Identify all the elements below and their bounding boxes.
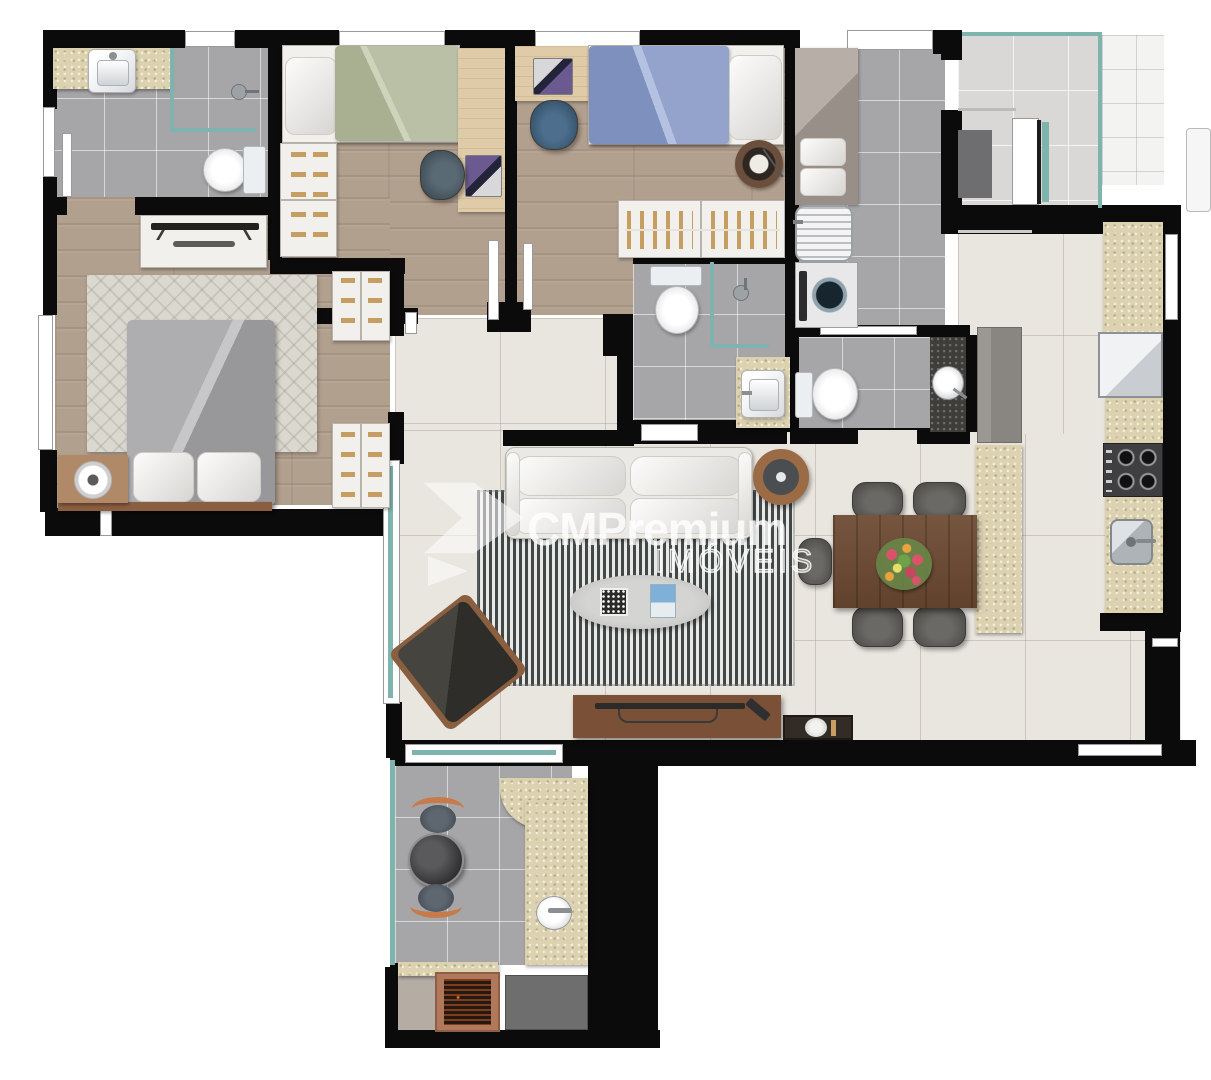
toilet-tank	[243, 146, 266, 194]
sliding-door-glass	[412, 750, 556, 755]
washer-controls	[799, 271, 807, 321]
window	[1165, 234, 1178, 320]
round-rug-floor-lamp	[735, 140, 783, 188]
bistro-chair	[410, 880, 462, 920]
wardrobe-handles	[341, 432, 355, 502]
refrigerator-icon	[1098, 332, 1163, 398]
toilet-bowl	[655, 286, 699, 334]
bistro-table	[408, 833, 464, 887]
square-sink	[741, 370, 785, 418]
wardrobe	[332, 271, 390, 341]
watermark-subtitle: IMÓVEIS	[655, 543, 816, 580]
book-icon	[650, 584, 676, 618]
terrace-service-counter	[505, 975, 588, 1030]
logo-tail	[428, 556, 468, 586]
wall	[603, 314, 633, 356]
barbecue-grill-icon	[435, 972, 500, 1032]
door-swing-line	[958, 230, 1032, 233]
door-opening	[858, 430, 917, 444]
bbq-nook-floor	[398, 975, 438, 1032]
pillow	[285, 57, 337, 135]
plant-pot-icon	[805, 718, 827, 737]
tv-stand	[618, 709, 718, 723]
console-decor	[831, 720, 836, 736]
chair-seat	[420, 805, 456, 833]
terrace-glass-wall	[390, 760, 395, 965]
external-tile-area	[1102, 35, 1164, 185]
sofa-back-cushion	[516, 456, 626, 496]
wall	[45, 508, 390, 536]
shower-glass	[170, 48, 174, 132]
wardrobe-handles	[368, 278, 382, 338]
faucet	[548, 908, 572, 913]
entry-door-edge	[1037, 120, 1041, 204]
tv-leg	[234, 230, 252, 240]
logo-arrow	[424, 478, 524, 558]
dresser-handles	[291, 152, 306, 252]
entry-glass-rail	[1098, 32, 1102, 208]
round-side-table	[753, 449, 809, 505]
window	[1152, 638, 1178, 647]
wall	[135, 197, 282, 215]
oval-coffee-table	[570, 575, 710, 629]
wall	[1100, 613, 1180, 631]
wardrobe-handles	[341, 278, 355, 338]
dining-chair	[913, 606, 966, 647]
wall	[388, 274, 404, 336]
kitchen-sink	[1110, 519, 1153, 565]
book-icon	[600, 588, 628, 616]
vanity-sink	[88, 49, 136, 93]
watermark-logo-icon	[424, 478, 524, 586]
towel	[800, 168, 846, 196]
entry-door-sidelight	[1042, 122, 1049, 202]
toilet-tank	[650, 266, 702, 286]
toilet-tank	[795, 372, 813, 418]
soundbar-icon	[173, 241, 235, 247]
side-table-decor	[776, 472, 786, 482]
door-jamb	[405, 312, 417, 334]
wall	[941, 30, 962, 60]
kitchen-counter	[1103, 222, 1163, 332]
flower-centerpiece-icon	[876, 538, 932, 590]
shower-arm	[245, 90, 259, 93]
hall-cabinet	[1186, 128, 1211, 212]
window	[847, 30, 933, 50]
toilet-bowl	[203, 148, 247, 192]
entry-glass-rail	[962, 32, 1102, 36]
washing-machine-icon	[795, 262, 858, 328]
sink-basin	[749, 379, 779, 411]
speaker-icon	[74, 461, 112, 499]
duvet-green	[335, 46, 460, 141]
wardrobe-divider	[360, 424, 362, 507]
faucet	[742, 391, 752, 395]
drawer-dresser	[280, 143, 337, 257]
island-counter	[975, 445, 1022, 633]
wall	[388, 412, 404, 464]
sofa-back-cushion	[630, 456, 742, 496]
faucet	[1136, 539, 1156, 543]
pillow	[197, 452, 261, 502]
wardrobe-divider	[360, 272, 362, 340]
tv-console	[140, 215, 267, 268]
plant-console	[783, 715, 853, 740]
remote-icon	[745, 698, 771, 722]
window	[185, 31, 235, 47]
door-swing-line	[958, 108, 1016, 111]
tv-leg	[156, 230, 174, 240]
window	[43, 107, 55, 177]
wall	[45, 30, 185, 48]
dresser-handles	[313, 152, 328, 252]
kitchen-counter	[1105, 398, 1163, 443]
floor-plan: CMPremium IMÓVEIS	[0, 0, 1211, 1080]
hallway-floor	[395, 318, 635, 434]
drain	[1126, 537, 1136, 547]
laptop-icon	[533, 58, 573, 95]
window	[38, 315, 53, 450]
headboard	[58, 502, 272, 511]
duvet-blue	[589, 46, 729, 144]
shower-arm	[744, 278, 747, 290]
tv-console	[573, 695, 781, 738]
dining-chair	[852, 606, 903, 647]
terrace-sink	[536, 896, 572, 930]
cooktop-knobs	[1106, 450, 1112, 492]
entry-door-leaf	[1012, 118, 1039, 205]
tv-icon	[151, 223, 259, 230]
door-opening	[641, 424, 698, 441]
window	[1078, 744, 1162, 756]
pillow	[133, 452, 194, 502]
faucet	[109, 52, 117, 60]
laptop-icon	[465, 155, 502, 197]
towel	[800, 138, 846, 166]
wardrobe-handles	[368, 432, 382, 502]
wardrobe-rail	[625, 229, 780, 231]
chair-seat	[418, 884, 454, 912]
faucet	[793, 220, 803, 224]
desk-chair	[530, 100, 578, 150]
laundry-tank-sink	[795, 205, 853, 262]
window	[100, 510, 112, 536]
dining-chair	[913, 482, 966, 519]
hanger-wardrobe	[618, 200, 785, 258]
wall	[617, 354, 633, 432]
sink-basin	[97, 60, 129, 86]
toilet-bowl	[812, 368, 858, 420]
shower-glass	[710, 262, 714, 346]
wall	[45, 197, 67, 215]
terrace-counter	[525, 800, 588, 965]
island-cabinet	[977, 327, 1022, 443]
wall	[503, 430, 634, 446]
pillow	[729, 55, 782, 140]
wall	[588, 764, 658, 1048]
wall	[40, 450, 57, 512]
door-leaf	[523, 243, 533, 310]
shower-glass	[712, 344, 769, 348]
grill-grate	[444, 979, 491, 1025]
shower-glass	[170, 128, 256, 132]
doormat	[958, 130, 992, 198]
desk-chair	[420, 150, 465, 200]
wardrobe	[332, 423, 390, 508]
door-leaf	[488, 240, 499, 320]
cooktop-icon	[1103, 443, 1163, 497]
dining-chair	[852, 482, 903, 519]
bistro-chair	[412, 797, 464, 835]
door-leaf	[62, 133, 72, 197]
